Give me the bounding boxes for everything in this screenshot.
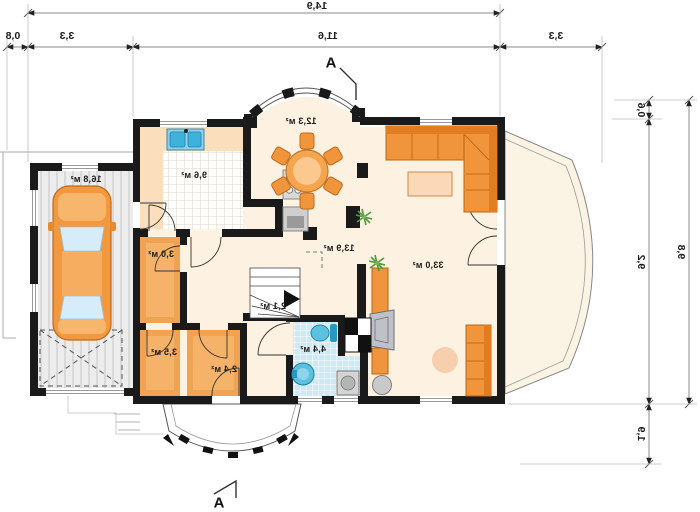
dim-house-depth: 9,2	[634, 256, 649, 268]
kitchen-tiles	[163, 151, 243, 229]
dim-terrace: 3,3	[549, 30, 564, 42]
dim-total-width: 14,9	[307, 0, 327, 12]
floor-plan: 14,9 0,8 3,3 11,6 3,3 0,6 9,2 1,9 9,8 16…	[0, 0, 700, 512]
armchair	[373, 376, 392, 395]
section-marker-top-line	[340, 68, 356, 100]
side-sofa	[466, 325, 491, 396]
room-label-wardrobe: 3,0 м²	[148, 249, 174, 259]
room-label-vestibule: 2,4 м²	[211, 364, 237, 374]
entrance-porch	[68, 396, 301, 458]
kitchen-pantry	[140, 151, 163, 229]
dim-garage-width: 3,3	[60, 30, 75, 42]
section-marker-top: A	[326, 55, 337, 72]
washing-machine	[337, 371, 359, 395]
coffee-table	[408, 172, 452, 196]
dim-eaves: 0,8	[6, 30, 21, 42]
kitchen-sink	[167, 129, 204, 150]
room-label-kitchen: 9,6 м²	[181, 170, 207, 180]
dim-bay-depth: 0,6	[634, 104, 649, 116]
fireplace	[345, 318, 371, 352]
dim-total-depth: 9,8	[674, 246, 689, 258]
room-label-bathroom: 4,4 м²	[300, 344, 326, 354]
kitchen-counter-block	[283, 207, 308, 231]
room-label-garage: 16,8 м²	[70, 174, 101, 184]
washbasin	[292, 363, 314, 385]
room-label-stairs: 2,1 м²	[260, 301, 286, 311]
car	[48, 186, 116, 340]
toilet	[311, 324, 337, 342]
porch-steps	[114, 414, 140, 430]
dim-house-width: 11,6	[318, 30, 338, 42]
terrace	[505, 131, 593, 394]
floor-plan-drawing	[0, 0, 700, 512]
round-rug	[432, 347, 458, 373]
room-label-hall: 13,9 м²	[323, 243, 354, 253]
dim-porch-depth: 1,9	[634, 428, 649, 440]
room-label-storage: 3,5 м²	[151, 347, 177, 357]
room-label-living: 33,0 м²	[412, 260, 443, 270]
section-marker-bottom: A	[214, 495, 225, 512]
room-label-dining: 12,3 м²	[285, 116, 316, 126]
